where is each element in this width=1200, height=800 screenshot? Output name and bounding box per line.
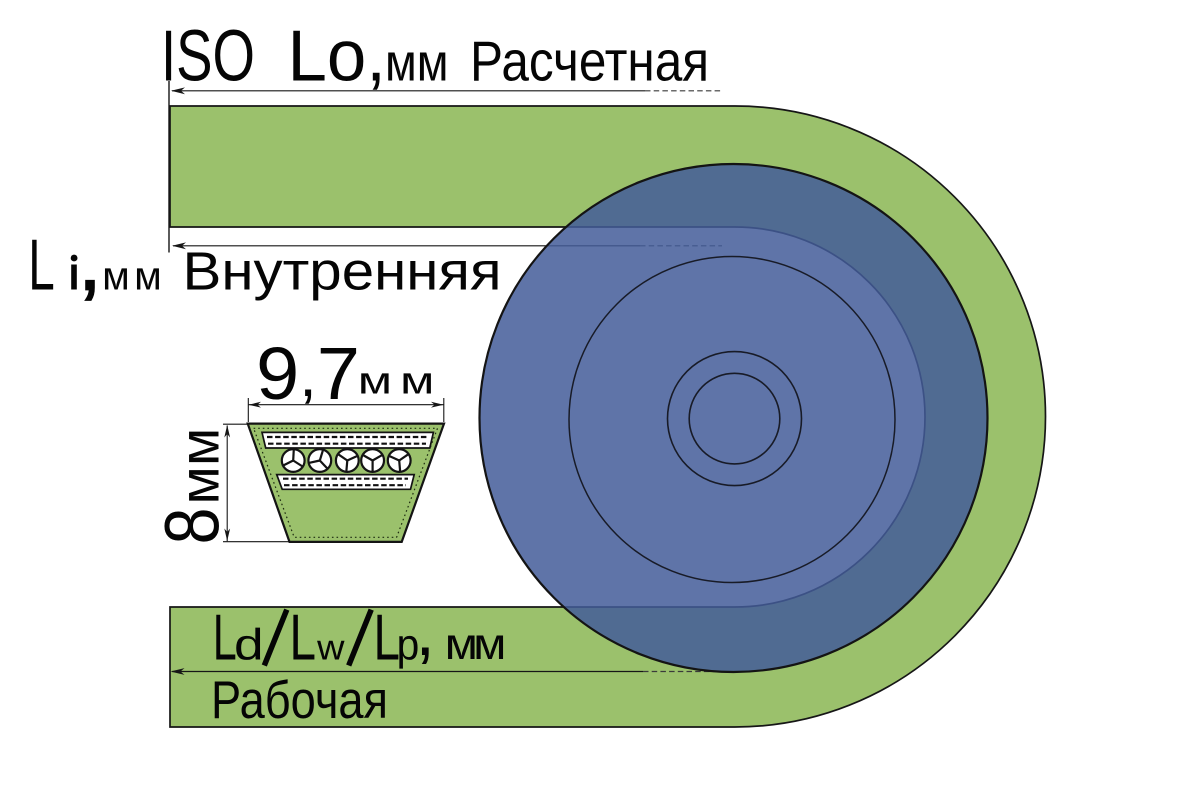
- svg-text:м: м: [169, 428, 231, 466]
- svg-text:м: м: [169, 466, 231, 504]
- svg-text:Расчетная: Расчетная: [470, 30, 709, 94]
- svg-text:Внутренняя: Внутренняя: [183, 242, 502, 302]
- svg-text:Рабочая: Рабочая: [211, 671, 388, 730]
- svg-text:,: ,: [79, 217, 102, 308]
- svg-text:L: L: [28, 226, 55, 306]
- svg-text:мм: мм: [385, 34, 449, 93]
- svg-text:L: L: [374, 602, 401, 674]
- svg-text:Lo,: Lo,: [288, 17, 387, 97]
- svg-text:8: 8: [150, 508, 236, 545]
- svg-text:ISO: ISO: [161, 17, 255, 97]
- svg-text:,: ,: [416, 592, 435, 670]
- svg-text:9,7: 9,7: [256, 332, 360, 415]
- svg-text:L: L: [213, 602, 237, 674]
- svg-text:L: L: [290, 602, 317, 674]
